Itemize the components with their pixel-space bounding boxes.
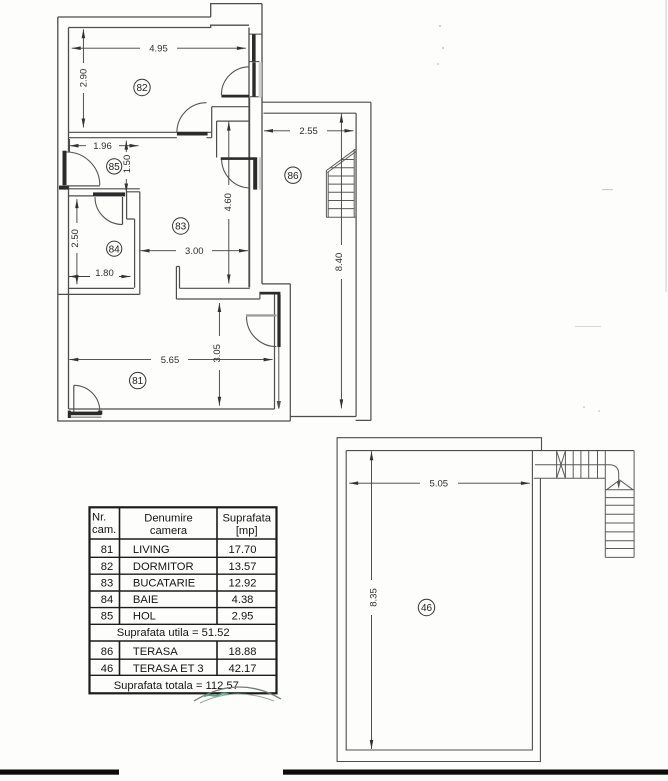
svg-text:LIVING: LIVING <box>133 544 170 556</box>
svg-text:82: 82 <box>101 561 113 573</box>
svg-text:2.90: 2.90 <box>79 69 90 88</box>
svg-text:13.57: 13.57 <box>229 561 257 573</box>
svg-text:BUCATARIE: BUCATARIE <box>133 577 195 589</box>
svg-text:2.55: 2.55 <box>299 126 318 137</box>
svg-text:8.35: 8.35 <box>369 588 380 607</box>
svg-text:46: 46 <box>421 603 433 614</box>
svg-text:4.95: 4.95 <box>149 44 168 55</box>
svg-text:83: 83 <box>175 222 187 233</box>
svg-text:3.05: 3.05 <box>212 344 223 363</box>
svg-text:TERASA ET 3: TERASA ET 3 <box>133 663 204 675</box>
svg-text:3.00: 3.00 <box>185 246 204 257</box>
svg-text:85: 85 <box>101 610 113 622</box>
svg-text:1.80: 1.80 <box>95 268 114 279</box>
svg-text:86: 86 <box>101 646 113 658</box>
svg-text:TERASA: TERASA <box>133 646 178 658</box>
svg-text:Denumire: Denumire <box>144 512 193 524</box>
svg-text:camera: camera <box>150 525 188 537</box>
svg-text:cam.: cam. <box>92 524 116 536</box>
svg-text:1.50: 1.50 <box>122 155 133 174</box>
svg-text:85: 85 <box>109 162 121 173</box>
svg-text:Nr.: Nr. <box>92 511 106 523</box>
svg-text:4.60: 4.60 <box>223 193 234 212</box>
svg-text:18.88: 18.88 <box>229 646 257 658</box>
svg-text:Suprafata utila = 51.52: Suprafata utila = 51.52 <box>117 627 230 639</box>
svg-text:4.38: 4.38 <box>232 594 254 606</box>
svg-text:42.17: 42.17 <box>229 663 257 675</box>
svg-text:2.95: 2.95 <box>232 610 254 622</box>
svg-text:BAIE: BAIE <box>133 594 159 606</box>
svg-text:HOL: HOL <box>133 610 156 622</box>
svg-text:81: 81 <box>101 544 113 556</box>
svg-text:84: 84 <box>101 594 113 606</box>
svg-text:DORMITOR: DORMITOR <box>133 561 194 573</box>
svg-text:86: 86 <box>287 171 299 182</box>
svg-text:2.50: 2.50 <box>70 229 81 248</box>
svg-text:46: 46 <box>101 663 113 675</box>
svg-text:17.70: 17.70 <box>229 544 257 556</box>
svg-text:5.05: 5.05 <box>430 479 449 490</box>
svg-text:81: 81 <box>132 376 144 387</box>
svg-text:5.65: 5.65 <box>161 355 180 366</box>
svg-text:12.92: 12.92 <box>229 577 257 589</box>
svg-text:[mp]: [mp] <box>236 525 258 537</box>
svg-text:82: 82 <box>136 83 148 94</box>
svg-text:1.96: 1.96 <box>93 141 112 152</box>
svg-text:83: 83 <box>101 577 113 589</box>
svg-text:Suprafata: Suprafata <box>222 512 271 524</box>
svg-text:8.40: 8.40 <box>334 253 345 272</box>
svg-text:84: 84 <box>109 244 121 255</box>
